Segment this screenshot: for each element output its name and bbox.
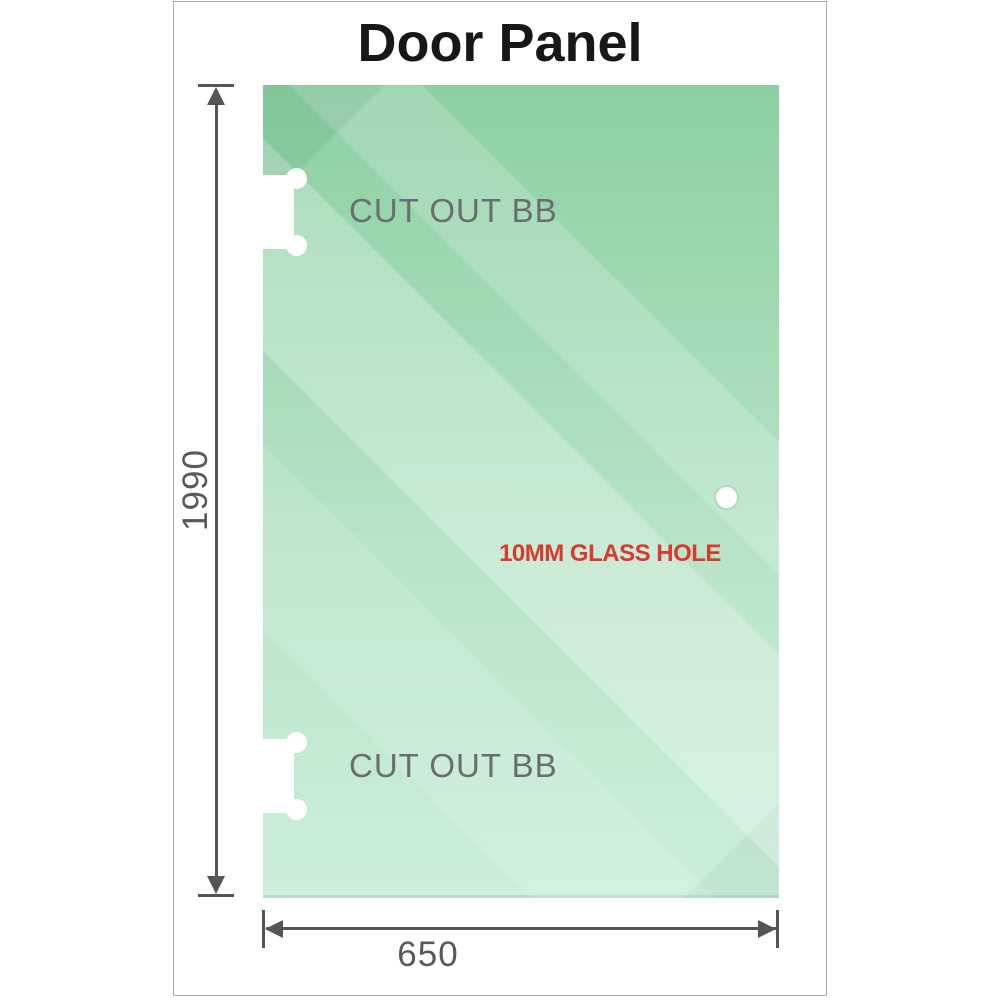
diagram-canvas: Door Panel CUT OUT BB CUT OUT BB 10MM GL…	[0, 0, 1000, 1000]
cutout-top	[263, 168, 307, 256]
arrow-down-icon	[207, 876, 225, 894]
glass-hole-label: 10MM GLASS HOLE	[460, 540, 760, 568]
height-dimension-label: 1990	[178, 430, 214, 550]
door-panel-glass: CUT OUT BB CUT OUT BB 10MM GLASS HOLE	[263, 85, 779, 898]
glass-hole	[716, 487, 737, 508]
cutout-bottom-label: CUT OUT BB	[349, 747, 558, 785]
cutout-bottom-notch	[263, 739, 294, 813]
cutout-top-label: CUT OUT BB	[349, 192, 558, 230]
drawing-frame: Door Panel CUT OUT BB CUT OUT BB 10MM GL…	[173, 1, 827, 996]
page-title: Door Panel	[174, 14, 826, 73]
cutout-bottom	[263, 732, 307, 820]
width-dimension-label: 650	[348, 935, 508, 975]
arrow-right-icon	[758, 920, 776, 938]
height-dimension-line	[215, 98, 218, 882]
arrow-up-icon	[207, 87, 225, 105]
height-dimension-cap-bottom	[198, 894, 234, 897]
width-dimension-line	[266, 927, 776, 930]
width-dimension-cap-right	[776, 910, 779, 948]
cutout-top-notch	[263, 175, 294, 249]
arrow-left-icon	[265, 920, 283, 938]
